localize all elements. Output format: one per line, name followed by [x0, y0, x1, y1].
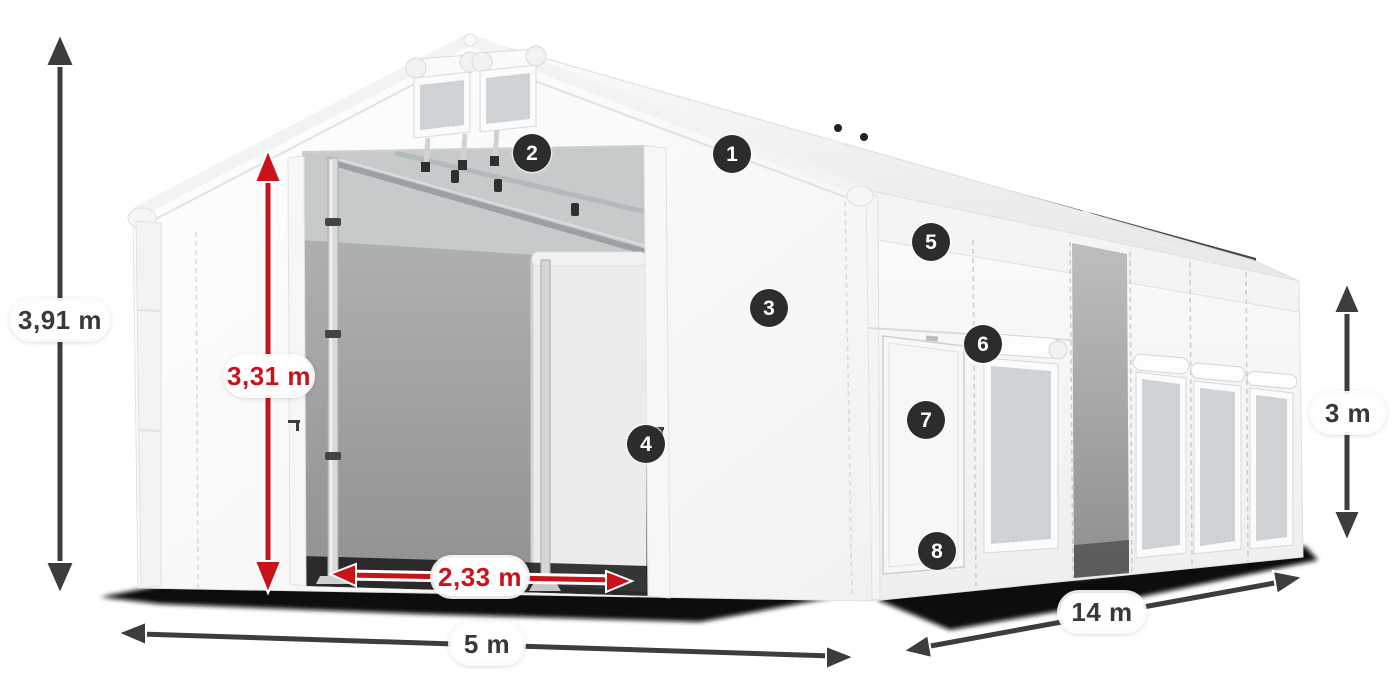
callout-3-front-wall[interactable]: 3 — [750, 289, 788, 327]
callout-5-side-valance[interactable]: 5 — [912, 223, 950, 261]
dimension-label-total-height: 3,91 m — [12, 301, 108, 339]
callout-2-frame[interactable]: 2 — [513, 134, 551, 172]
entrance-interior — [302, 146, 650, 596]
side-windows-back — [1132, 354, 1297, 558]
callout-1-roof-cover[interactable]: 1 — [713, 135, 751, 173]
callout-7-side-door[interactable]: 7 — [907, 401, 945, 439]
dimension-label-entrance-height: 3,31 m — [226, 357, 312, 395]
dimension-label-side-length: 14 m — [1060, 593, 1144, 631]
side-window-front — [977, 333, 1067, 553]
callout-8-side-door-skirt[interactable]: 8 — [918, 532, 956, 570]
corner-post — [136, 221, 161, 588]
tent-illustration — [0, 0, 1400, 700]
vent-window-left — [406, 52, 480, 138]
dimension-label-side-height: 3 m — [1312, 394, 1384, 432]
product-dimension-diagram: 3,91 m 3,31 m 2,33 m 5 m 14 m 3 m 1 2 3 … — [0, 0, 1400, 700]
callout-4-entrance-door[interactable]: 4 — [627, 425, 665, 463]
dimension-label-front-width: 5 m — [451, 625, 523, 663]
vent-window-right — [472, 46, 546, 132]
side-open-section — [1072, 243, 1129, 578]
callout-6-window-roll[interactable]: 6 — [964, 325, 1002, 363]
dimension-label-entrance-width: 2,33 m — [433, 558, 527, 596]
